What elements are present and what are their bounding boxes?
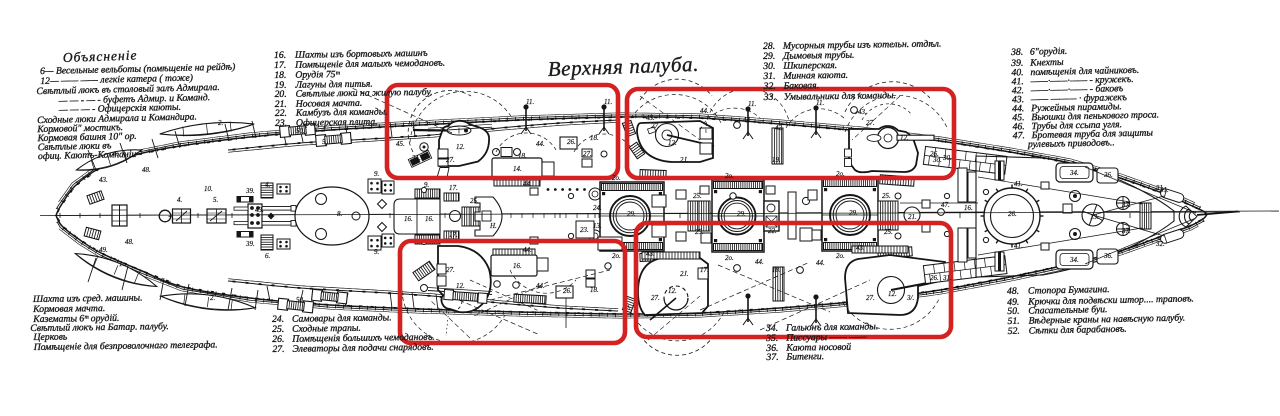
svg-text:6.: 6. bbox=[265, 252, 271, 260]
svg-text:52.: 52. bbox=[1008, 326, 1020, 337]
svg-text:18.: 18. bbox=[518, 152, 527, 160]
svg-text:3o.: 3o. bbox=[932, 156, 942, 164]
svg-text:27.: 27. bbox=[583, 150, 592, 158]
svg-text:39.: 39. bbox=[245, 187, 255, 195]
svg-text:44.: 44. bbox=[536, 282, 545, 290]
svg-text:10.: 10. bbox=[204, 185, 213, 193]
svg-text:12.: 12. bbox=[900, 134, 909, 142]
svg-text:24.: 24. bbox=[593, 204, 602, 212]
svg-text:5.: 5. bbox=[213, 196, 219, 204]
svg-text:26.: 26. bbox=[930, 274, 939, 282]
svg-text:9.: 9. bbox=[424, 181, 430, 189]
svg-text:2o.: 2o. bbox=[612, 174, 621, 182]
svg-text:16.: 16. bbox=[513, 262, 522, 270]
svg-text:37.: 37. bbox=[1121, 227, 1131, 235]
svg-text:12.: 12. bbox=[668, 139, 677, 147]
svg-text:43.: 43. bbox=[255, 206, 264, 214]
svg-text:43.: 43. bbox=[99, 176, 108, 184]
svg-text:33.: 33. bbox=[763, 92, 776, 103]
svg-text:2J.: 2J. bbox=[680, 270, 689, 278]
svg-text:27.: 27. bbox=[651, 122, 660, 130]
svg-text:11.: 11. bbox=[604, 98, 612, 106]
svg-text:14.: 14. bbox=[513, 165, 522, 173]
svg-text:50.: 50. bbox=[296, 296, 305, 304]
svg-text:2o.: 2o. bbox=[836, 170, 845, 178]
svg-text:29.: 29. bbox=[849, 209, 858, 217]
svg-text:16.: 16. bbox=[404, 215, 413, 223]
svg-text:13.: 13. bbox=[593, 222, 602, 230]
svg-text:42.: 42. bbox=[775, 124, 784, 132]
svg-text:32.: 32. bbox=[1155, 240, 1165, 248]
svg-text:34.: 34. bbox=[1069, 169, 1079, 177]
svg-text:38.: 38. bbox=[1010, 47, 1023, 58]
svg-text:17.: 17. bbox=[700, 266, 709, 274]
svg-text:26.: 26. bbox=[567, 138, 576, 146]
svg-text:30.: 30. bbox=[942, 154, 952, 162]
svg-text:17.: 17. bbox=[449, 184, 458, 192]
svg-text:12.: 12. bbox=[668, 287, 677, 295]
svg-text:48.: 48. bbox=[1007, 286, 1019, 297]
svg-text:9.: 9. bbox=[374, 170, 380, 178]
svg-text:25.: 25. bbox=[470, 197, 479, 205]
svg-text:6ʺорудія.: 6ʺорудія. bbox=[1030, 46, 1067, 58]
svg-text:26.: 26. bbox=[1008, 210, 1017, 218]
svg-text:47.: 47. bbox=[1013, 130, 1025, 141]
svg-text:2o.: 2o. bbox=[725, 254, 734, 262]
svg-text:36.: 36. bbox=[1103, 171, 1113, 179]
svg-text:9.: 9. bbox=[374, 248, 380, 256]
svg-text:44.: 44. bbox=[700, 107, 709, 115]
svg-text:7.: 7. bbox=[168, 215, 174, 223]
svg-text:27.: 27. bbox=[272, 344, 284, 355]
svg-text:34.: 34. bbox=[1069, 256, 1079, 264]
svg-text:13.: 13. bbox=[1090, 213, 1099, 221]
svg-text:2o.: 2o. bbox=[725, 172, 734, 180]
svg-text:Сѣтки для барабановъ.: Сѣтки для барабановъ. bbox=[1029, 324, 1127, 337]
svg-text:3/.: 3/. bbox=[906, 294, 914, 302]
svg-text:11.: 11. bbox=[816, 99, 824, 107]
svg-text:Н.: Н. bbox=[489, 222, 497, 230]
svg-text:39.: 39. bbox=[245, 240, 255, 248]
svg-text:1.: 1. bbox=[119, 260, 125, 268]
svg-text:29.: 29. bbox=[627, 210, 636, 218]
svg-text:офиц. Каютъ-Компаніи: офиц. Каютъ-Компаніи bbox=[38, 149, 137, 162]
svg-text:44.: 44. bbox=[523, 180, 532, 188]
svg-text:32.: 32. bbox=[762, 81, 775, 92]
svg-text:45.: 45. bbox=[396, 140, 405, 148]
svg-text:12.: 12. bbox=[456, 143, 465, 151]
svg-text:Баковая.: Баковая. bbox=[782, 80, 819, 92]
svg-text:27.: 27. bbox=[446, 156, 455, 164]
svg-text:22.: 22. bbox=[768, 227, 777, 235]
svg-text:37.: 37. bbox=[1121, 201, 1131, 209]
svg-text:44.: 44. bbox=[743, 116, 752, 124]
svg-text:43.: 43. bbox=[646, 114, 655, 122]
svg-text:Офицерская плита.: Офицерская плита. bbox=[296, 117, 378, 129]
svg-text:49.: 49. bbox=[99, 246, 108, 254]
svg-text:Элеваторы для подачи снарядовъ: Элеваторы для подачи снарядовъ. bbox=[292, 342, 433, 355]
svg-text:25.: 25. bbox=[882, 192, 891, 200]
svg-text:25.: 25. bbox=[884, 228, 893, 236]
svg-text:2o.: 2o. bbox=[612, 252, 621, 260]
svg-text:47.: 47. bbox=[941, 201, 950, 209]
svg-text:11.: 11. bbox=[526, 98, 534, 106]
svg-text:31.: 31. bbox=[942, 274, 952, 282]
svg-text:5.: 5. bbox=[322, 138, 328, 146]
svg-text:50.: 50. bbox=[296, 127, 305, 135]
svg-text:44.: 44. bbox=[523, 246, 532, 254]
svg-text:27.: 27. bbox=[651, 294, 660, 302]
svg-text:2J.: 2J. bbox=[680, 156, 689, 164]
svg-text:44.: 44. bbox=[755, 258, 764, 266]
svg-text:Умывальники для команды.: Умывальники для команды. bbox=[784, 90, 896, 103]
svg-text:8.: 8. bbox=[337, 210, 343, 218]
svg-text:18.: 18. bbox=[590, 134, 599, 142]
svg-text:25.: 25. bbox=[693, 192, 702, 200]
svg-text:41.: 41. bbox=[1014, 180, 1023, 188]
svg-text:37.: 37. bbox=[765, 352, 778, 363]
svg-text:43.: 43. bbox=[856, 244, 865, 252]
svg-text:31.: 31. bbox=[411, 154, 421, 162]
svg-text:2.: 2. bbox=[210, 294, 216, 302]
svg-text:36.: 36. bbox=[1103, 252, 1113, 260]
svg-text:Битенги.: Битенги. bbox=[785, 351, 824, 363]
svg-text:18.: 18. bbox=[590, 286, 599, 294]
svg-text:16.: 16. bbox=[964, 204, 973, 212]
svg-text:17.: 17. bbox=[449, 231, 458, 239]
svg-text:23.: 23. bbox=[580, 226, 589, 234]
svg-text:23.: 23. bbox=[275, 118, 287, 129]
svg-text:27.: 27. bbox=[446, 266, 455, 274]
svg-text:25.: 25. bbox=[695, 228, 704, 236]
svg-text:16.: 16. bbox=[425, 215, 434, 223]
svg-text:2o.: 2o. bbox=[836, 252, 845, 260]
svg-text:4.: 4. bbox=[113, 150, 119, 158]
svg-text:12.: 12. bbox=[456, 282, 465, 290]
svg-text:4.: 4. bbox=[265, 181, 271, 189]
svg-text:12.: 12. bbox=[888, 290, 897, 298]
svg-text:43.: 43. bbox=[858, 108, 867, 116]
svg-text:18.: 18. bbox=[772, 266, 781, 274]
svg-text:48.: 48. bbox=[125, 238, 134, 246]
svg-text:Объясненіе: Объясненіе bbox=[63, 47, 138, 65]
svg-text:27.: 27. bbox=[866, 119, 875, 127]
svg-text:44.: 44. bbox=[536, 140, 545, 148]
svg-text:2.: 2. bbox=[218, 119, 224, 127]
svg-text:26.: 26. bbox=[563, 287, 572, 295]
svg-text:11.: 11. bbox=[748, 100, 756, 108]
svg-text:21.: 21. bbox=[908, 213, 917, 221]
svg-text:43.: 43. bbox=[646, 250, 655, 258]
svg-text:27.: 27. bbox=[866, 294, 875, 302]
svg-text:19.: 19. bbox=[772, 156, 781, 164]
svg-text:48.: 48. bbox=[142, 166, 151, 174]
svg-text:29.: 29. bbox=[737, 210, 746, 218]
svg-text:41.: 41. bbox=[1014, 242, 1023, 250]
svg-text:4.: 4. bbox=[177, 196, 183, 204]
svg-text:31.: 31. bbox=[1155, 184, 1165, 192]
svg-text:рулевыхъ приводовъ..: рулевыхъ приводовъ.. bbox=[1027, 137, 1115, 150]
svg-text:44.: 44. bbox=[816, 259, 825, 267]
